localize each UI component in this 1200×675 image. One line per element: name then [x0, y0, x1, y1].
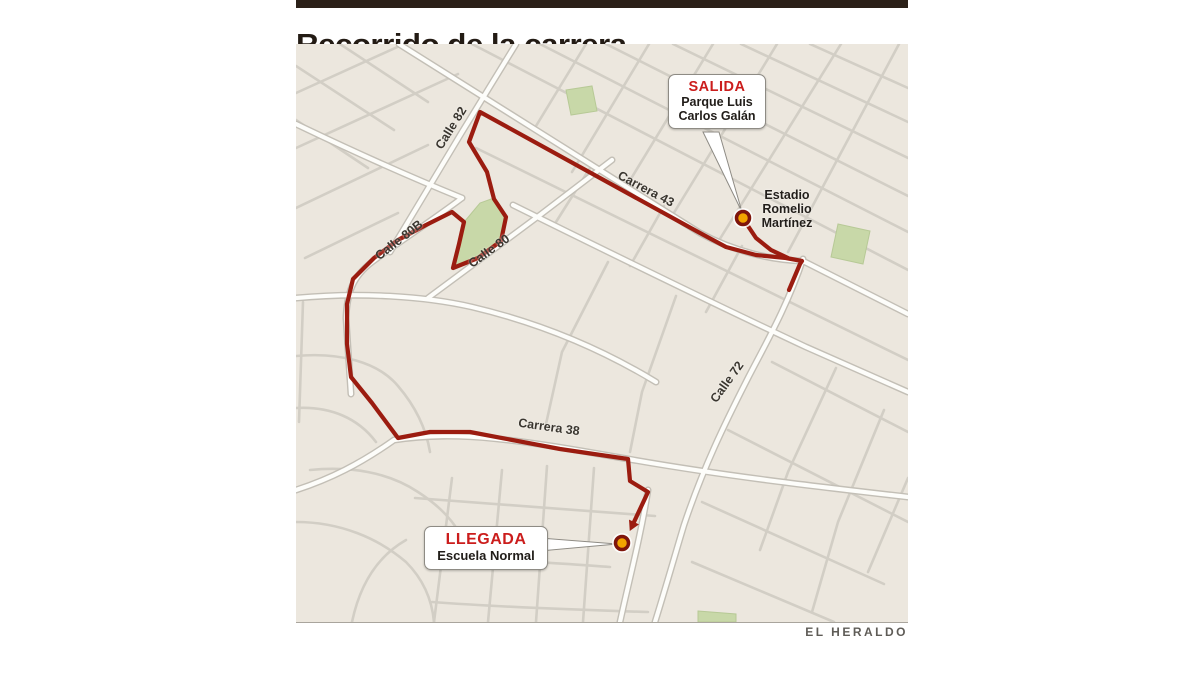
callout-salida: SALIDA Parque Luis Carlos Galán: [668, 74, 766, 129]
callout-salida-line: Carlos Galán: [671, 109, 763, 123]
park-estadio: [831, 224, 870, 264]
top-bar: [296, 0, 908, 8]
callout-llegada: LLEGADA Escuela Normal: [424, 526, 548, 570]
callout-llegada-line: Escuela Normal: [427, 549, 545, 564]
map-canvas: Calle 82 Carrera 43 Calle 80B Calle 80 C…: [296, 44, 908, 623]
credit: EL HERALDO: [805, 625, 908, 639]
map-background: [296, 44, 908, 622]
park-small-square: [566, 86, 597, 115]
callout-salida-line: Parque Luis: [671, 95, 763, 109]
race-route-infographic: Recorrido de la carrera: [0, 0, 1200, 675]
callout-llegada-title: LLEGADA: [427, 531, 545, 549]
callout-salida-title: SALIDA: [671, 79, 763, 95]
map-svg: [296, 44, 908, 622]
llegada-dot: [616, 537, 629, 550]
salida-dot: [737, 212, 750, 225]
place-label-estadio: Estadio Romelio Martínez: [762, 188, 813, 230]
